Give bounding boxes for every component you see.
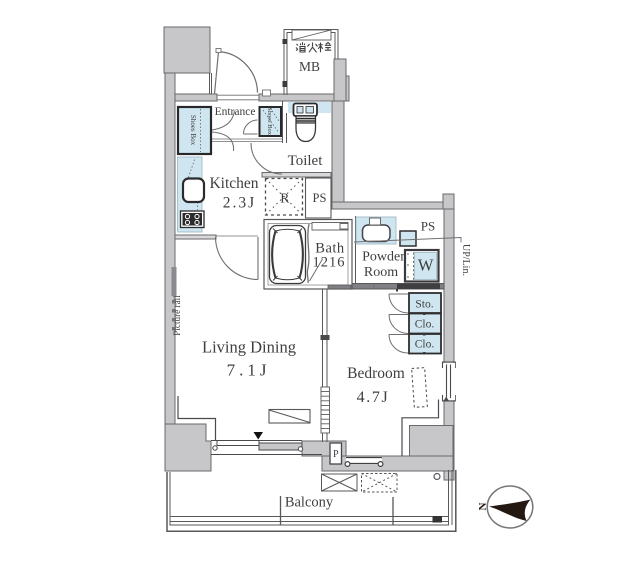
svg-text:N: N [477,502,489,510]
svg-text:PS: PS [421,219,435,234]
svg-text:Shoes Box: Shoes Box [266,107,273,136]
svg-text:UP/Lin.: UP/Lin. [460,244,471,276]
svg-text:Powder: Powder [362,250,405,265]
svg-text:Toilet: Toilet [288,153,324,169]
svg-text:4.7J: 4.7J [357,389,390,406]
svg-text:P: P [333,449,339,460]
svg-text:Sto.: Sto. [415,299,433,311]
svg-text:Kitchen: Kitchen [209,175,258,192]
svg-text:Bedroom: Bedroom [347,365,405,382]
svg-text:MB: MB [299,59,320,74]
svg-text:W: W [418,256,434,275]
svg-text:7.1J: 7.1J [227,361,271,380]
svg-text:Clo.: Clo. [415,339,435,351]
svg-text:Clo.: Clo. [415,319,435,331]
svg-text:Living Dining: Living Dining [202,338,296,357]
svg-text:Balcony: Balcony [285,495,334,511]
svg-text:Entrance: Entrance [215,106,256,118]
svg-text:1216: 1216 [313,255,346,271]
svg-text:Picture rail: Picture rail [172,295,182,336]
svg-text:2.3J: 2.3J [223,195,256,212]
svg-text:Room: Room [364,265,398,280]
svg-text:PS: PS [313,191,327,205]
svg-text:R: R [280,191,289,206]
svg-text:Shoes Box: Shoes Box [189,115,197,146]
